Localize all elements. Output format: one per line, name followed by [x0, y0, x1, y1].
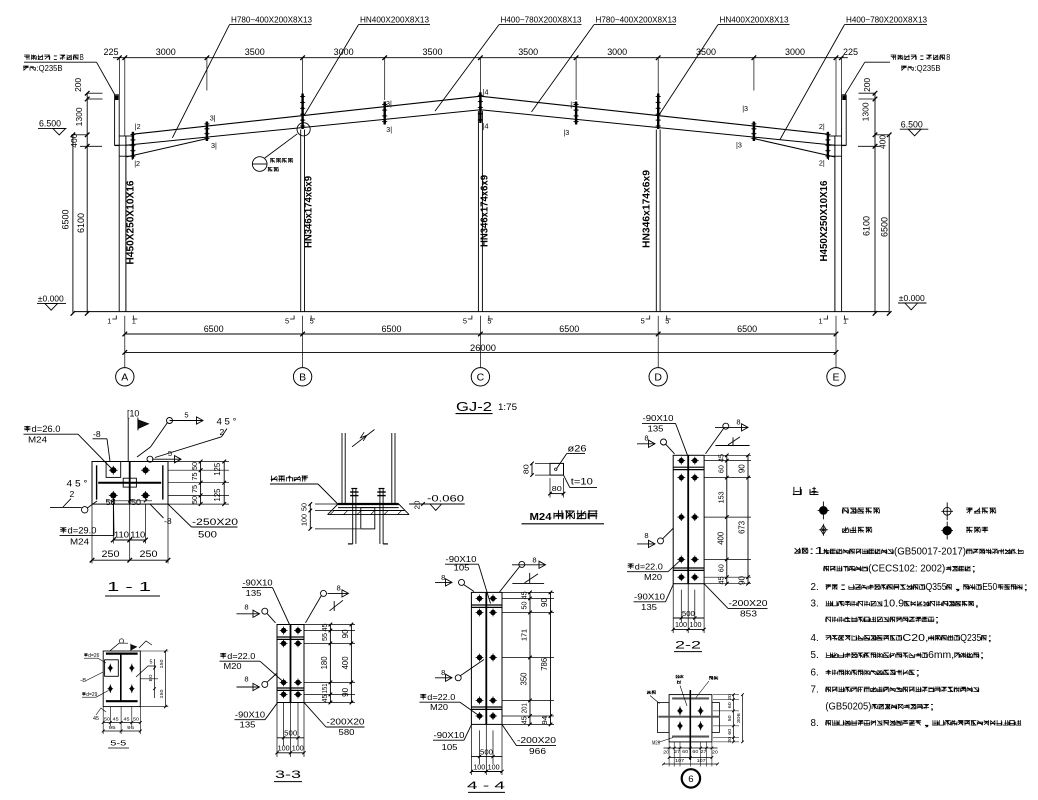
svg-text:50: 50: [302, 503, 309, 511]
svg-text:;: ;: [980, 650, 985, 661]
svg-text:d=26.0: d=26.0: [32, 424, 61, 434]
svg-text:;: ;: [1023, 582, 1028, 593]
svg-text:180: 180: [320, 656, 329, 670]
svg-text:201: 201: [520, 703, 529, 713]
svg-text::: :: [838, 582, 848, 593]
svg-text:C: C: [477, 372, 485, 384]
svg-text:M20: M20: [644, 572, 662, 582]
svg-text:2.: 2.: [811, 582, 819, 593]
svg-text:2-2: 2-2: [675, 639, 701, 651]
svg-text:6.: 6.: [811, 667, 819, 678]
svg-text:7.: 7.: [811, 684, 819, 695]
svg-text:80: 80: [552, 484, 562, 493]
svg-text:[10: [10: [127, 408, 139, 418]
svg-text:90: 90: [738, 575, 747, 585]
svg-text:6: 6: [688, 774, 693, 785]
svg-text:-0.060: -0.060: [427, 492, 464, 503]
svg-text:-8: -8: [93, 429, 101, 439]
svg-text:8.: 8.: [811, 718, 819, 729]
svg-text:100: 100: [292, 744, 304, 753]
svg-text:786: 786: [540, 658, 549, 671]
svg-text:50: 50: [520, 602, 529, 610]
svg-text:4.: 4.: [811, 633, 819, 644]
svg-text:5-5: 5-5: [110, 741, 126, 748]
svg-text:HN400X200X8X13: HN400X200X8X13: [720, 15, 789, 25]
svg-text:1: 1: [843, 317, 847, 326]
svg-text:8: 8: [244, 603, 248, 612]
svg-text:110: 110: [130, 529, 145, 539]
svg-text:-90X10: -90X10: [634, 591, 665, 601]
svg-text:75: 75: [190, 485, 199, 493]
svg-text:400: 400: [341, 656, 350, 670]
svg-text:60: 60: [716, 564, 725, 572]
svg-text:1300: 1300: [74, 107, 84, 126]
svg-text:1: 1: [818, 317, 822, 326]
svg-text:107: 107: [675, 758, 684, 764]
svg-text:500: 500: [284, 729, 297, 738]
svg-text:(GB50205): (GB50205): [825, 702, 871, 713]
svg-text:45: 45: [124, 717, 131, 722]
svg-text:90: 90: [341, 687, 350, 697]
svg-text:(CECS102: 2002): (CECS102: 2002): [868, 564, 945, 575]
svg-text:26000: 26000: [470, 343, 496, 353]
svg-text:5: 5: [463, 317, 467, 326]
svg-text:M24: M24: [530, 512, 552, 523]
svg-text:1: 1: [132, 317, 136, 326]
svg-text:±0.000: ±0.000: [899, 293, 925, 303]
svg-text:-90X10: -90X10: [243, 577, 273, 587]
svg-text:Q235: Q235: [960, 633, 981, 644]
svg-text:500: 500: [480, 747, 493, 756]
svg-text:50: 50: [104, 717, 111, 722]
svg-text:;: ;: [935, 614, 940, 625]
svg-text:A: A: [121, 372, 128, 384]
svg-text:45: 45: [113, 717, 120, 722]
svg-text:20: 20: [712, 749, 719, 754]
svg-text:60: 60: [716, 465, 725, 473]
svg-text:3|: 3|: [386, 99, 392, 108]
svg-text:55: 55: [320, 633, 329, 641]
svg-text:,: ,: [974, 599, 979, 610]
svg-text:H450X250X10X16: H450X250X10X16: [819, 180, 830, 262]
svg-text:|3: |3: [736, 140, 742, 149]
svg-text:3500: 3500: [423, 47, 443, 57]
svg-text:45: 45: [520, 716, 529, 724]
svg-text:6500: 6500: [879, 217, 889, 237]
svg-text:400: 400: [877, 135, 887, 149]
svg-text:1 - 1: 1 - 1: [107, 580, 151, 594]
svg-text:100: 100: [473, 762, 485, 771]
svg-text:125: 125: [212, 488, 222, 501]
svg-text:50: 50: [190, 496, 199, 504]
svg-text:|3: |3: [563, 128, 569, 137]
svg-text:95: 95: [109, 725, 116, 731]
svg-text:M24: M24: [28, 435, 47, 445]
svg-text:2|: 2|: [819, 122, 825, 131]
svg-text:8: 8: [336, 583, 340, 592]
svg-text:|2: |2: [135, 122, 141, 131]
svg-text:200: 200: [73, 78, 83, 92]
svg-text:5: 5: [150, 660, 153, 666]
svg-text:;: ;: [930, 702, 935, 713]
svg-text:135: 135: [246, 588, 262, 598]
svg-text:E50: E50: [982, 582, 997, 593]
svg-text:M20: M20: [224, 661, 242, 671]
svg-text:250: 250: [102, 549, 120, 559]
svg-text:135: 135: [648, 424, 664, 434]
svg-text:90: 90: [540, 597, 549, 607]
svg-text:HN346x174x6x9: HN346x174x6x9: [642, 169, 653, 248]
svg-text:107: 107: [697, 758, 706, 764]
svg-text:966: 966: [529, 746, 546, 756]
svg-text:500: 500: [682, 609, 695, 618]
svg-text:151: 151: [320, 683, 329, 693]
svg-text:105: 105: [454, 562, 470, 572]
svg-text:90: 90: [738, 464, 747, 474]
svg-text:6500: 6500: [737, 324, 757, 334]
svg-text:2|: 2|: [819, 158, 825, 167]
svg-text:B: B: [80, 53, 84, 62]
svg-text::Q235B: :Q235B: [915, 64, 941, 73]
svg-text:6100: 6100: [862, 216, 872, 236]
svg-text:6.500: 6.500: [39, 119, 61, 129]
svg-text:500: 500: [198, 530, 217, 540]
svg-text::: :: [917, 53, 926, 62]
svg-text:GJ-2: GJ-2: [456, 399, 492, 414]
svg-text:6.500: 6.500: [901, 119, 923, 129]
svg-text:50: 50: [131, 498, 142, 507]
svg-text:6100: 6100: [76, 213, 86, 233]
svg-text:580: 580: [339, 727, 355, 737]
svg-text:6500: 6500: [61, 209, 71, 229]
svg-text:100: 100: [488, 762, 500, 771]
svg-text:8: 8: [736, 418, 740, 427]
svg-text:90: 90: [341, 629, 350, 639]
svg-text:4 5 °: 4 5 °: [67, 479, 88, 489]
svg-text:3|: 3|: [211, 141, 217, 150]
svg-text:-250X20: -250X20: [192, 517, 238, 527]
svg-text:250: 250: [140, 549, 158, 559]
svg-text:5: 5: [310, 317, 314, 326]
svg-text:3000: 3000: [785, 47, 805, 57]
svg-text:5: 5: [285, 317, 289, 326]
svg-text:-90X10: -90X10: [643, 413, 674, 423]
svg-text:d=22.0: d=22.0: [227, 651, 255, 661]
svg-text:400: 400: [69, 133, 79, 147]
svg-text:8: 8: [441, 573, 445, 582]
svg-text:6500: 6500: [204, 324, 224, 334]
svg-text::: :: [51, 53, 60, 62]
svg-text:8: 8: [244, 674, 248, 683]
svg-text:;: ;: [971, 564, 976, 575]
svg-text:|2: |2: [134, 159, 140, 168]
svg-text:350: 350: [520, 672, 529, 686]
svg-text:150: 150: [159, 689, 164, 699]
svg-text:673: 673: [738, 521, 747, 534]
svg-text:;: ;: [915, 667, 920, 678]
svg-text:60: 60: [727, 702, 732, 709]
svg-text:M20: M20: [652, 741, 660, 747]
svg-text:60: 60: [682, 749, 689, 754]
svg-text:200: 200: [862, 78, 872, 92]
svg-text:B: B: [299, 372, 306, 384]
svg-text:d=22.0: d=22.0: [427, 692, 455, 702]
svg-text:8: 8: [441, 668, 445, 677]
svg-text:,: ,: [922, 718, 932, 729]
svg-text:20: 20: [414, 500, 421, 509]
svg-text:D: D: [654, 372, 662, 384]
svg-text:100: 100: [690, 620, 702, 629]
svg-text:153: 153: [716, 491, 725, 503]
svg-text:|3: |3: [742, 104, 748, 113]
svg-text:|4: |4: [483, 121, 489, 130]
svg-text:100: 100: [302, 514, 309, 526]
svg-text:20: 20: [727, 693, 732, 700]
svg-text:1:75: 1:75: [498, 402, 517, 413]
svg-text:135: 135: [641, 602, 657, 612]
svg-text:d=22.0: d=22.0: [635, 562, 663, 572]
svg-text:27: 27: [701, 749, 708, 754]
svg-text:6500: 6500: [559, 324, 579, 334]
svg-text:94: 94: [540, 716, 549, 725]
svg-text:50: 50: [727, 715, 732, 722]
svg-text:60: 60: [727, 728, 732, 735]
svg-text:45: 45: [716, 454, 725, 462]
svg-text:80: 80: [148, 674, 153, 682]
svg-text:45: 45: [716, 577, 725, 585]
svg-text:H450X250X10X16: H450X250X10X16: [126, 180, 137, 265]
svg-text:-200X20: -200X20: [729, 598, 768, 608]
svg-text:M20: M20: [430, 702, 448, 712]
svg-text:10.9: 10.9: [883, 599, 904, 610]
svg-text:100: 100: [278, 744, 290, 753]
svg-text:100: 100: [675, 620, 687, 629]
svg-text:171: 171: [520, 629, 529, 641]
svg-text:8: 8: [946, 53, 950, 62]
svg-text:-90X10: -90X10: [235, 709, 265, 719]
svg-text:60: 60: [692, 749, 699, 754]
svg-text:E: E: [832, 372, 839, 384]
svg-text:-90X10: -90X10: [434, 730, 465, 740]
svg-text:6500: 6500: [382, 324, 402, 334]
svg-text:95: 95: [127, 725, 134, 731]
svg-text:27: 27: [674, 749, 681, 754]
svg-text:;: ;: [987, 633, 992, 644]
svg-text:150: 150: [159, 659, 164, 669]
svg-text:8: 8: [644, 434, 648, 443]
svg-text:C20,: C20,: [902, 633, 928, 644]
svg-text:4 - 4: 4 - 4: [467, 780, 505, 792]
svg-text:3|: 3|: [386, 125, 392, 134]
svg-text:5: 5: [184, 411, 188, 420]
svg-text:6mm,: 6mm,: [928, 650, 954, 661]
svg-text:H400~780X200X8X13: H400~780X200X8X13: [846, 15, 927, 25]
svg-text:H780~400X200X8X13: H780~400X200X8X13: [596, 15, 677, 25]
svg-text:5: 5: [487, 317, 491, 326]
svg-text:HN400X200X8X13: HN400X200X8X13: [360, 15, 429, 25]
svg-text:|4: |4: [483, 88, 489, 97]
svg-text:45: 45: [320, 624, 329, 632]
svg-text:-8: -8: [80, 678, 86, 684]
svg-text:3000: 3000: [156, 47, 176, 57]
svg-text:3000: 3000: [607, 47, 627, 57]
svg-text:2: 2: [70, 489, 75, 499]
svg-text:125: 125: [212, 462, 222, 475]
svg-text:20: 20: [727, 736, 732, 743]
svg-text:|3: |3: [570, 100, 576, 109]
svg-text:400: 400: [716, 531, 725, 545]
svg-text:110: 110: [114, 529, 129, 539]
svg-text:3-3: 3-3: [275, 769, 301, 781]
svg-text:105: 105: [442, 742, 458, 752]
svg-text:50: 50: [133, 717, 140, 722]
svg-text:135: 135: [240, 720, 256, 730]
svg-text:±0.000: ±0.000: [38, 294, 64, 304]
svg-text::Q235B: :Q235B: [37, 64, 63, 73]
svg-text:-200X20: -200X20: [517, 735, 556, 745]
svg-text:3500: 3500: [696, 47, 716, 57]
svg-text:HN346x174x6x9: HN346x174x6x9: [304, 175, 315, 248]
svg-text:3500: 3500: [518, 47, 538, 57]
svg-text:225: 225: [843, 47, 858, 57]
svg-text:306: 306: [736, 713, 742, 723]
svg-text:HN346x174x6x9: HN346x174x6x9: [480, 174, 491, 247]
svg-text:M24: M24: [70, 536, 89, 546]
svg-text:5: 5: [665, 317, 669, 326]
svg-text:75: 75: [190, 473, 199, 481]
svg-text:5.: 5.: [811, 650, 819, 661]
svg-text:20: 20: [663, 749, 670, 754]
svg-text:45: 45: [520, 591, 529, 599]
svg-text:3500: 3500: [245, 47, 265, 57]
svg-text:H780~400X200X8X13: H780~400X200X8X13: [231, 15, 312, 25]
svg-text:5: 5: [641, 317, 645, 326]
svg-text:8: 8: [644, 531, 648, 540]
svg-text:1300: 1300: [861, 102, 871, 121]
svg-text:H400~780X200X8X13: H400~780X200X8X13: [501, 15, 582, 25]
svg-text:50: 50: [190, 462, 199, 470]
svg-text:1: 1: [107, 317, 111, 326]
svg-text:45: 45: [93, 716, 99, 722]
svg-text:8: 8: [532, 555, 536, 564]
svg-text:t=10: t=10: [571, 476, 593, 487]
svg-text:3|: 3|: [210, 113, 216, 122]
svg-text:80: 80: [521, 464, 530, 474]
svg-text:,: ,: [953, 582, 963, 593]
svg-text:853: 853: [740, 609, 757, 619]
svg-text:45: 45: [320, 695, 329, 703]
svg-text:-200X20: -200X20: [327, 717, 365, 727]
svg-text:Q355: Q355: [926, 582, 947, 593]
svg-text:4 5 °: 4 5 °: [217, 417, 237, 427]
svg-text:225: 225: [104, 47, 119, 57]
svg-text:3.: 3.: [811, 599, 819, 610]
svg-text:(GB50017-2017): (GB50017-2017): [894, 546, 966, 557]
